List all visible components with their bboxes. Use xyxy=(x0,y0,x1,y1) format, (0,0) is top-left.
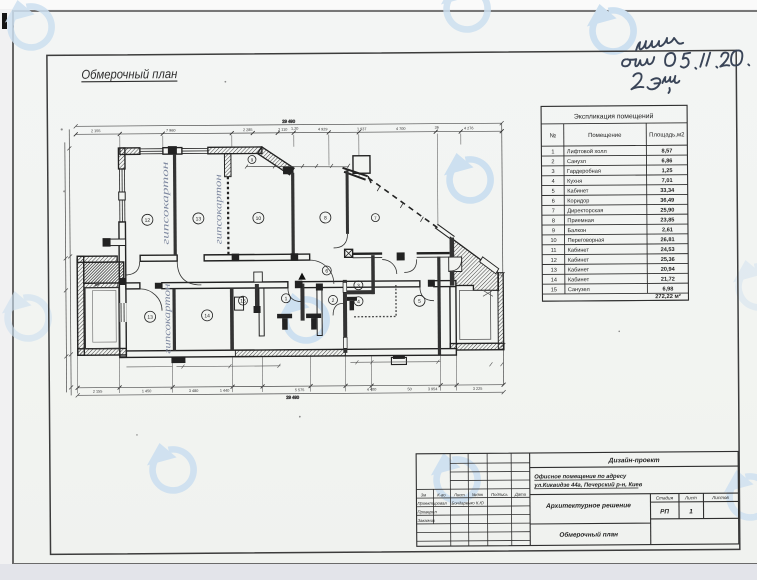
svg-text:9: 9 xyxy=(251,158,254,163)
svg-text:Санузл: Санузл xyxy=(567,159,586,165)
svg-text:1: 1 xyxy=(285,296,288,302)
svg-text:4 700: 4 700 xyxy=(396,127,406,131)
svg-text:Кабинет: Кабинет xyxy=(568,277,590,283)
svg-text:4 929: 4 929 xyxy=(318,127,328,131)
svg-text:3 954: 3 954 xyxy=(428,387,438,391)
svg-text:Балкон: Балкон xyxy=(567,228,586,234)
svg-text:11: 11 xyxy=(551,248,557,254)
svg-text:Площадь,м2: Площадь,м2 xyxy=(649,132,685,138)
svg-text:2 155: 2 155 xyxy=(91,129,101,133)
svg-text:гипсокартон: гипсокартон xyxy=(214,174,225,244)
svg-text:гипсокартон: гипсокартон xyxy=(161,161,172,245)
svg-text:272,22 м²: 272,22 м² xyxy=(655,293,681,300)
svg-text:36,49: 36,49 xyxy=(660,198,674,204)
svg-text:1: 1 xyxy=(551,149,554,155)
svg-text:8: 8 xyxy=(324,215,327,221)
svg-text:6,86: 6,86 xyxy=(662,158,673,164)
svg-text:Лист: Лист xyxy=(453,492,465,497)
svg-text:1,25: 1,25 xyxy=(662,168,673,174)
svg-text:7: 7 xyxy=(552,209,555,215)
svg-text:Обмерочный план: Обмерочный план xyxy=(559,530,618,538)
svg-text:4 276: 4 276 xyxy=(464,126,474,130)
svg-text:29 490: 29 490 xyxy=(282,119,296,124)
svg-text:Обмерочный план: Обмерочный план xyxy=(81,66,177,82)
svg-text:1 440: 1 440 xyxy=(220,389,230,393)
svg-text:РП: РП xyxy=(660,508,669,515)
svg-text:2: 2 xyxy=(551,159,554,165)
svg-text:4: 4 xyxy=(357,299,360,305)
svg-text:Стадия: Стадия xyxy=(656,495,674,500)
svg-text:Коридор: Коридор xyxy=(567,198,589,204)
svg-text:Кабинет: Кабинет xyxy=(567,188,589,194)
svg-text:Зм: Зм xyxy=(421,492,427,497)
svg-text:6,98: 6,98 xyxy=(662,286,673,292)
svg-text:21,72: 21,72 xyxy=(661,277,675,283)
svg-text:2: 2 xyxy=(332,298,335,304)
svg-text:13: 13 xyxy=(196,216,202,222)
svg-text:6: 6 xyxy=(552,199,555,205)
svg-text:8: 8 xyxy=(552,218,555,224)
svg-text:25,36: 25,36 xyxy=(661,257,675,263)
svg-text:2 285: 2 285 xyxy=(243,128,253,132)
svg-text:Проектировал: Проектировал xyxy=(417,501,447,506)
svg-text:Листов: Листов xyxy=(711,495,729,500)
svg-text:Кухня: Кухня xyxy=(567,179,582,185)
svg-text:Помещение: Помещение xyxy=(588,133,622,139)
svg-text:№док: №док xyxy=(472,492,484,497)
svg-text:7,01: 7,01 xyxy=(662,178,673,184)
svg-text:Приемная: Приемная xyxy=(567,218,593,224)
svg-text:13: 13 xyxy=(551,268,557,274)
svg-text:№: № xyxy=(550,132,556,139)
svg-text:7 960: 7 960 xyxy=(166,129,176,133)
svg-text:33,34: 33,34 xyxy=(660,188,675,194)
svg-text:3: 3 xyxy=(357,283,360,289)
svg-text:12: 12 xyxy=(145,218,151,224)
svg-text:3 225: 3 225 xyxy=(473,387,483,391)
svg-text:20,94: 20,94 xyxy=(661,267,676,273)
svg-text:8,57: 8,57 xyxy=(661,148,672,154)
svg-text:Лифтовой холл: Лифтовой холл xyxy=(567,148,607,155)
svg-text:5: 5 xyxy=(552,189,555,195)
svg-text:Офисное помещение по адресу: Офисное помещение по адресу xyxy=(534,473,627,481)
svg-text:Переговорная: Переговорная xyxy=(568,238,605,244)
svg-text:2 155: 2 155 xyxy=(93,390,103,394)
svg-text:3: 3 xyxy=(551,169,554,175)
svg-text:Подпись: Подпись xyxy=(491,492,508,497)
svg-text:14: 14 xyxy=(551,277,557,283)
svg-text:9: 9 xyxy=(552,228,555,234)
svg-text:2 110: 2 110 xyxy=(278,128,287,132)
svg-text:29 490: 29 490 xyxy=(286,395,300,400)
svg-text:Кабинет: Кабинет xyxy=(568,267,590,273)
svg-text:Директорская: Директорская xyxy=(567,208,603,214)
svg-text:15: 15 xyxy=(240,299,246,305)
svg-text:36: 36 xyxy=(435,126,439,130)
svg-text:Проверил: Проверил xyxy=(418,509,438,514)
svg-text:Лист: Лист xyxy=(684,495,697,500)
svg-text:23,85: 23,85 xyxy=(660,217,674,223)
svg-text:10: 10 xyxy=(256,216,262,222)
svg-text:2,61: 2,61 xyxy=(662,227,673,233)
svg-text:Архитектурное решение: Архитектурное решение xyxy=(545,502,631,510)
svg-text:6: 6 xyxy=(325,268,328,274)
svg-text:7: 7 xyxy=(374,216,377,221)
svg-text:24,53: 24,53 xyxy=(661,247,675,253)
svg-text:Дата: Дата xyxy=(514,492,527,497)
svg-text:1,20: 1,20 xyxy=(291,127,298,131)
svg-text:1 937: 1 937 xyxy=(357,127,367,131)
svg-text:гипсокартон: гипсокартон xyxy=(163,283,174,353)
svg-text:50: 50 xyxy=(408,387,412,391)
svg-text:Бондаренко К.Ю: Бондаренко К.Ю xyxy=(451,500,484,505)
svg-text:Санузел: Санузел xyxy=(568,287,590,293)
svg-text:1 450: 1 450 xyxy=(142,389,152,393)
svg-text:5 575: 5 575 xyxy=(295,388,305,392)
svg-text:3 480: 3 480 xyxy=(189,389,199,393)
svg-text:14: 14 xyxy=(204,313,210,319)
svg-text:Дизайн-проект: Дизайн-проект xyxy=(608,456,660,464)
svg-text:Заказчик: Заказчик xyxy=(418,518,436,523)
svg-text:13: 13 xyxy=(147,315,153,321)
svg-text:К-во: К-во xyxy=(437,492,446,497)
svg-text:5: 5 xyxy=(418,299,421,305)
svg-text:4: 4 xyxy=(552,179,555,185)
svg-text:Экспликация помещений: Экспликация помещений xyxy=(574,112,654,121)
svg-text:Гардеробная: Гардеробная xyxy=(567,169,601,175)
svg-text:Кабинет: Кабинет xyxy=(568,258,590,264)
svg-text:Кабинет: Кабинет xyxy=(568,248,590,254)
svg-text:1: 1 xyxy=(689,508,693,515)
svg-text:10: 10 xyxy=(550,238,556,244)
svg-text:25,90: 25,90 xyxy=(660,208,674,214)
svg-text:15: 15 xyxy=(551,287,557,293)
svg-text:26,81: 26,81 xyxy=(661,237,675,243)
svg-text:12: 12 xyxy=(551,258,557,264)
